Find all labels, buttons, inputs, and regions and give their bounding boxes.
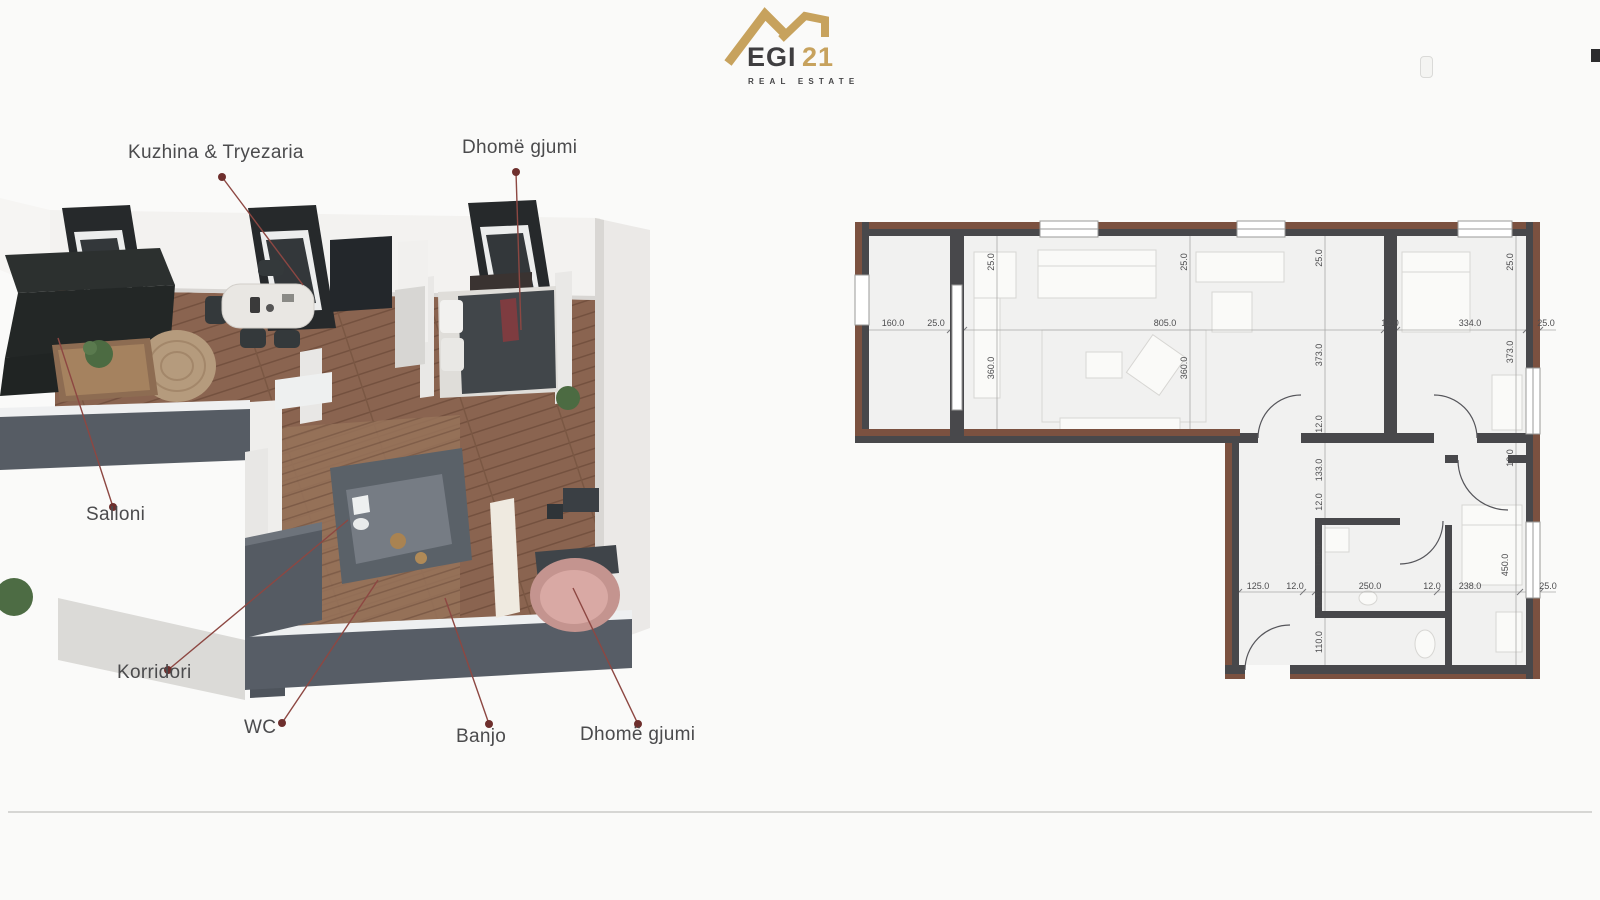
logo-text-21: 21 (802, 42, 834, 72)
label-kitchen-dining: Kuzhina & Tryezaria (128, 142, 304, 164)
svg-text:360.0: 360.0 (1179, 357, 1189, 380)
label-corridor: Korridori (117, 662, 192, 684)
svg-text:25.0: 25.0 (1314, 249, 1324, 267)
svg-text:25.0: 25.0 (927, 318, 945, 328)
svg-text:12.0: 12.0 (1423, 581, 1441, 591)
floorplan-2d: 160.0 25.0 805.0 12.0 334.0 25.0 25.0 36… (840, 195, 1560, 695)
svg-text:25.0: 25.0 (1179, 253, 1189, 271)
balcony-3d (0, 400, 285, 700)
corner-square (1591, 49, 1600, 62)
egi21-logo: EGI 21 REAL ESTATE (703, 6, 873, 96)
svg-text:12.0: 12.0 (1286, 581, 1304, 591)
svg-text:110.0: 110.0 (1314, 631, 1324, 653)
label-wc: WC (244, 717, 276, 739)
svg-text:450.0: 450.0 (1500, 554, 1510, 577)
label-bedroom-bottom: Dhomë gjumi (580, 724, 695, 746)
svg-text:12.0: 12.0 (1314, 591, 1324, 609)
svg-text:250.0: 250.0 (1359, 581, 1382, 591)
label-living: Salloni (86, 504, 145, 526)
svg-text:12.0: 12.0 (1505, 449, 1515, 467)
svg-text:334.0: 334.0 (1459, 318, 1482, 328)
svg-text:805.0: 805.0 (1154, 318, 1177, 328)
svg-text:12.0: 12.0 (1381, 318, 1399, 328)
svg-text:160.0: 160.0 (882, 318, 905, 328)
svg-text:12.0: 12.0 (1314, 415, 1324, 433)
svg-text:238.0: 238.0 (1459, 581, 1482, 591)
svg-text:25.0: 25.0 (1539, 581, 1557, 591)
svg-text:25.0: 25.0 (1537, 318, 1555, 328)
floorplan-3d (0, 100, 720, 780)
scroll-hint-icon (1420, 56, 1433, 78)
svg-text:360.0: 360.0 (986, 357, 996, 380)
bottom-divider (8, 811, 1592, 813)
svg-text:12.0: 12.0 (1314, 493, 1324, 511)
label-bedroom-top: Dhomë gjumi (462, 137, 577, 159)
svg-text:25.0: 25.0 (1505, 253, 1515, 271)
logo-text-egi: EGI (747, 42, 797, 72)
svg-text:373.0: 373.0 (1505, 341, 1515, 364)
svg-text:25.0: 25.0 (986, 253, 996, 271)
svg-text:133.0: 133.0 (1314, 459, 1324, 482)
svg-text:166.0: 166.0 (1314, 545, 1324, 568)
label-bathroom: Banjo (456, 726, 506, 748)
svg-text:373.0: 373.0 (1314, 344, 1324, 367)
logo-tagline: REAL ESTATE (748, 77, 859, 86)
svg-text:125.0: 125.0 (1247, 581, 1270, 591)
